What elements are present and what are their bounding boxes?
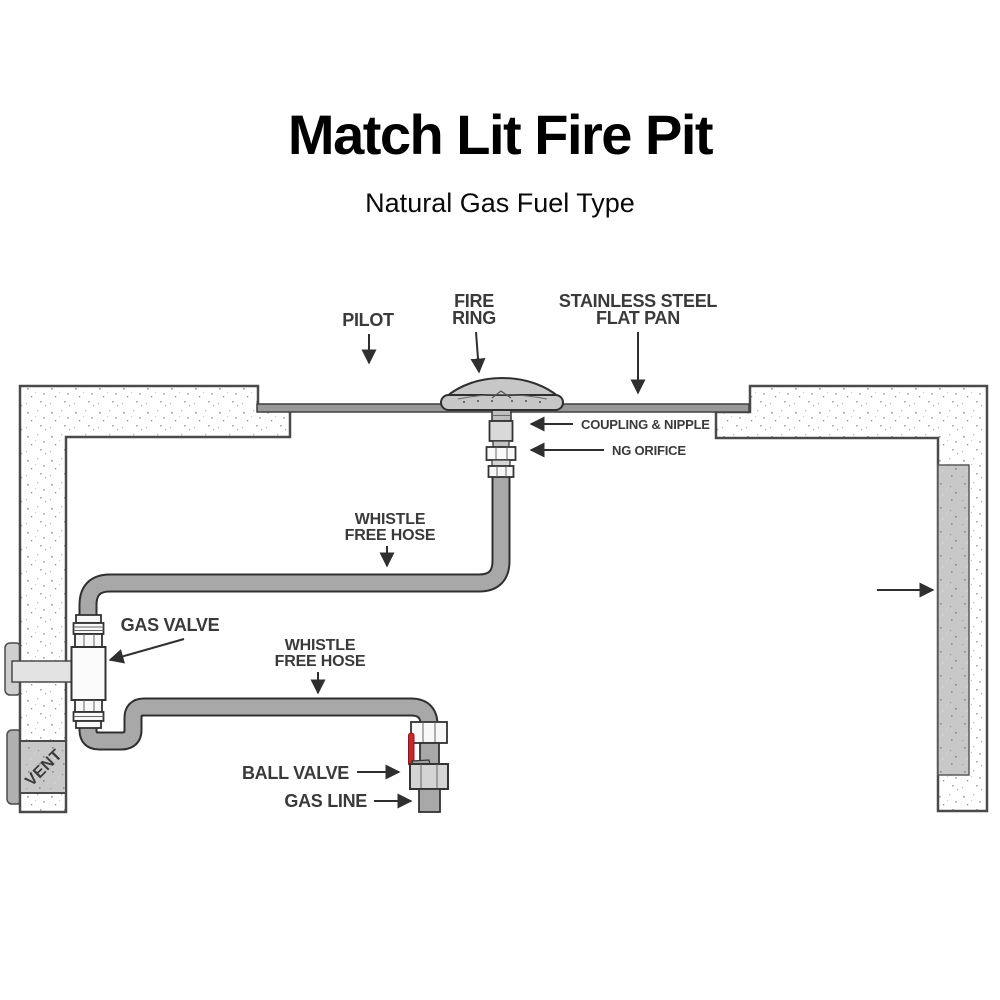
gas-valve-label: GAS VALVE [121, 615, 220, 635]
gas-valve-body [72, 647, 106, 700]
coupling-nipple-label: COUPLING & NIPPLE [581, 417, 710, 432]
canvas: Match Lit Fire Pit Natural Gas Fuel Type [0, 0, 1000, 1000]
annotations: PILOT FIRE RING STAINLESS STEEL FLAT PAN… [110, 291, 933, 811]
coupling-and-nipple [490, 421, 513, 447]
gas-line-label: GAS LINE [284, 791, 367, 811]
fire-ring [441, 378, 563, 421]
gas-line-pipe [419, 789, 440, 812]
lower-whistle-free-hose [88, 707, 429, 741]
ball-valve-label: BALL VALVE [242, 763, 349, 783]
gas-valve [72, 615, 106, 728]
fire-ring-label-line2: RING [452, 308, 496, 328]
ball-valve-assembly [409, 722, 449, 812]
ng-orifice-fitting [487, 447, 516, 477]
ng-orifice-label: NG ORIFICE [612, 443, 686, 458]
flat-pan-label-line2: FLAT PAN [596, 308, 680, 328]
fire-ring-base [441, 395, 563, 410]
hose-union-fitting [411, 722, 447, 743]
gas-valve-arrow [110, 639, 184, 660]
valve-key-shaft [12, 661, 73, 682]
vent: VENT [20, 741, 66, 793]
lower-hose-label-line2: FREE HOSE [275, 653, 366, 670]
right-wall-liner-panel [938, 465, 969, 775]
fire-pit-diagram: VENT [0, 0, 1000, 1000]
ball-valve-body [410, 764, 448, 789]
upper-whistle-free-hose [88, 452, 501, 622]
upper-hose-label-line1: WHISTLE [355, 511, 426, 528]
pilot-label: PILOT [342, 310, 394, 330]
lower-hose-label-line1: WHISTLE [285, 637, 356, 654]
fire-ring-arrow [476, 332, 479, 372]
upper-hose-label-line2: FREE HOSE [345, 527, 436, 544]
